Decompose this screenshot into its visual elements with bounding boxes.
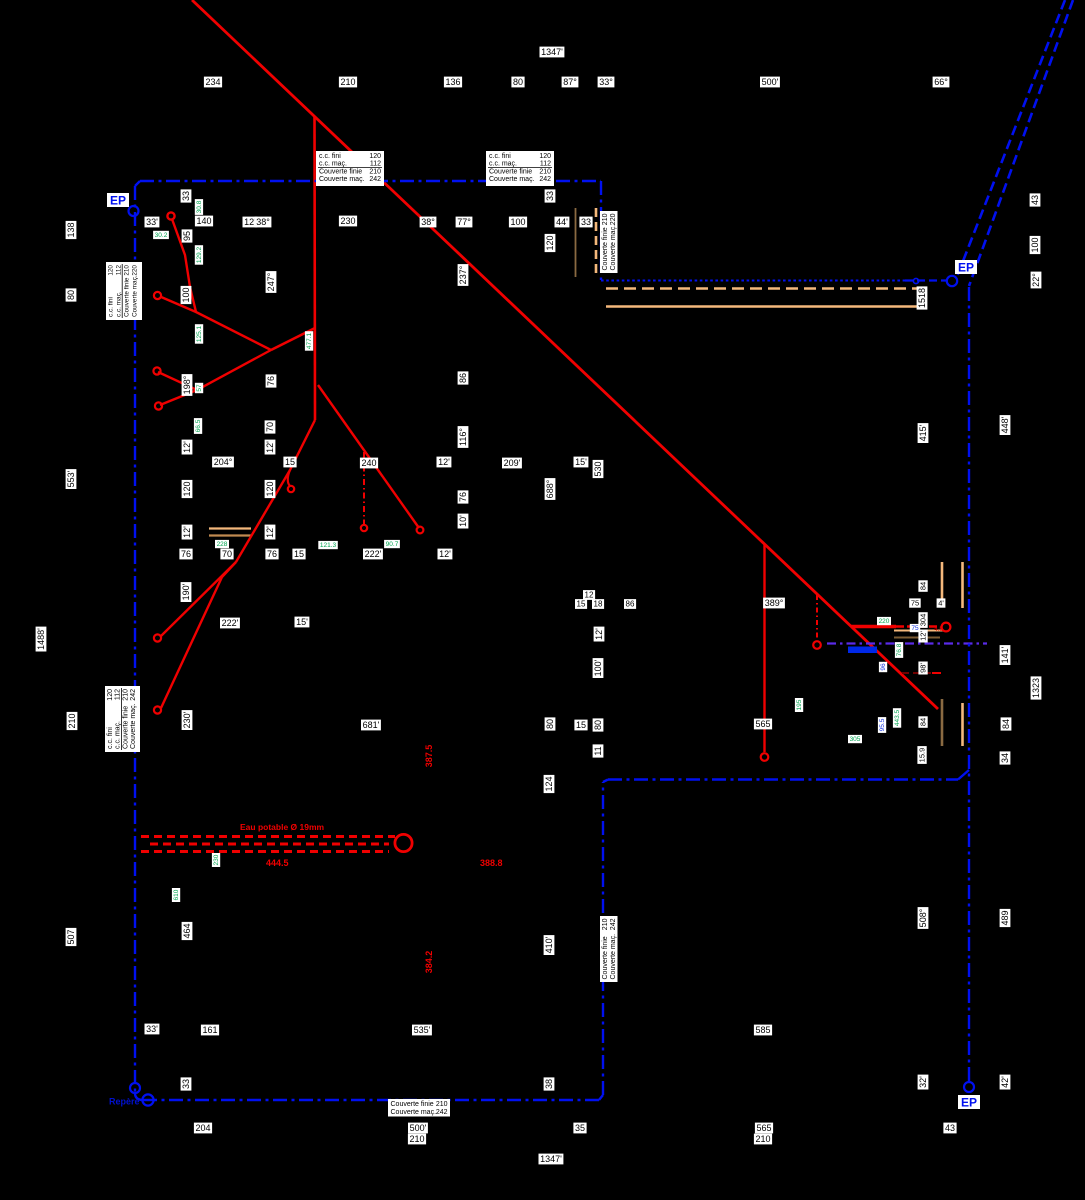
svg-text:76: 76 — [181, 549, 191, 559]
svg-text:112: 112 — [115, 689, 122, 700]
svg-text:12': 12' — [594, 628, 604, 640]
svg-text:c.c. maç.: c.c. maç. — [489, 161, 517, 168]
svg-text:190': 190' — [181, 583, 191, 600]
svg-text:c.c. maç.: c.c. maç. — [319, 161, 347, 168]
svg-text:489: 489 — [1000, 910, 1010, 925]
svg-text:15: 15 — [576, 720, 586, 730]
svg-text:c.c. fini: c.c. fini — [489, 153, 511, 160]
svg-text:30.2: 30.2 — [155, 232, 168, 239]
svg-text:112: 112 — [115, 265, 122, 276]
svg-text:237°: 237° — [458, 265, 468, 284]
svg-text:98': 98' — [919, 663, 928, 673]
svg-text:210: 210 — [67, 713, 77, 728]
svg-text:228: 228 — [217, 541, 228, 548]
svg-text:10': 10' — [458, 515, 468, 527]
svg-text:Couverte finie: Couverte finie — [123, 277, 130, 317]
svg-text:116°: 116° — [458, 428, 468, 446]
svg-text:Eau potable Ø 19mm: Eau potable Ø 19mm — [240, 822, 325, 832]
svg-text:c.c. maç.: c.c. maç. — [115, 291, 122, 317]
svg-text:195: 195 — [796, 699, 803, 710]
svg-text:204: 204 — [195, 1123, 210, 1133]
svg-text:535': 535' — [414, 1025, 431, 1035]
svg-text:33: 33 — [181, 191, 191, 201]
svg-text:585: 585 — [755, 1025, 770, 1035]
svg-text:96: 96 — [880, 663, 887, 671]
svg-text:387.5: 387.5 — [424, 745, 434, 768]
svg-text:34: 34 — [1000, 753, 1010, 763]
svg-text:415': 415' — [918, 424, 928, 441]
svg-text:33': 33' — [146, 217, 158, 227]
svg-text:76: 76 — [267, 549, 277, 559]
svg-text:Couverte maç.: Couverte maç. — [489, 176, 535, 183]
svg-text:138: 138 — [66, 222, 76, 237]
svg-text:1488': 1488' — [36, 628, 46, 650]
svg-text:76: 76 — [458, 492, 468, 502]
svg-text:210: 210 — [340, 77, 355, 87]
svg-text:Couverte finie: Couverte finie — [391, 1101, 434, 1108]
svg-text:230': 230' — [182, 711, 192, 728]
svg-text:38: 38 — [544, 1079, 554, 1089]
svg-text:247°: 247° — [266, 272, 276, 291]
svg-text:242: 242 — [369, 176, 381, 183]
svg-text:210: 210 — [369, 168, 381, 175]
svg-text:141': 141' — [1000, 646, 1010, 663]
svg-text:124: 124 — [544, 776, 554, 791]
svg-text:100: 100 — [181, 287, 191, 302]
svg-text:42': 42' — [1000, 1076, 1010, 1088]
svg-text:33: 33 — [545, 191, 555, 201]
svg-text:43: 43 — [1030, 195, 1040, 205]
svg-text:448': 448' — [1000, 416, 1010, 433]
svg-text:565: 565 — [755, 719, 770, 729]
svg-text:242: 242 — [610, 918, 617, 930]
svg-text:681': 681' — [363, 720, 380, 730]
svg-text:c.c. fini: c.c. fini — [319, 153, 341, 160]
svg-text:120: 120 — [182, 481, 192, 496]
svg-text:444.5: 444.5 — [266, 858, 289, 868]
svg-text:209': 209' — [504, 458, 521, 468]
svg-text:120: 120 — [369, 153, 381, 160]
svg-text:198°: 198° — [182, 375, 192, 394]
svg-text:389°: 389° — [765, 598, 784, 608]
svg-text:15: 15 — [294, 549, 304, 559]
svg-text:38°: 38° — [421, 217, 435, 227]
svg-text:Couverte finie: Couverte finie — [122, 706, 129, 749]
svg-text:30.8: 30.8 — [196, 200, 203, 213]
svg-text:220: 220 — [610, 213, 617, 225]
svg-text:140: 140 — [196, 216, 211, 226]
svg-text:100': 100' — [593, 659, 603, 676]
svg-text:12': 12' — [438, 457, 450, 467]
svg-text:EP: EP — [110, 194, 126, 208]
svg-text:688°: 688° — [545, 479, 555, 498]
svg-text:70: 70 — [222, 549, 232, 559]
svg-text:80: 80 — [545, 719, 555, 729]
svg-text:220: 220 — [879, 618, 890, 625]
svg-text:84: 84 — [919, 718, 928, 726]
svg-text:508°: 508° — [918, 908, 928, 927]
svg-text:220: 220 — [131, 265, 138, 276]
svg-text:204°: 204° — [214, 457, 233, 467]
svg-text:100: 100 — [1030, 237, 1040, 252]
svg-text:87°: 87° — [563, 77, 577, 87]
svg-text:Couverte maç.: Couverte maç. — [610, 934, 617, 980]
svg-text:57: 57 — [196, 384, 203, 392]
svg-text:86: 86 — [458, 373, 468, 383]
svg-text:18: 18 — [594, 600, 603, 609]
svg-text:210: 210 — [602, 918, 609, 930]
svg-text:43: 43 — [945, 1123, 955, 1133]
svg-text:35: 35 — [575, 1123, 585, 1133]
svg-text:76.8: 76.8 — [896, 643, 903, 656]
svg-text:530: 530 — [593, 461, 603, 476]
svg-text:388.8: 388.8 — [480, 858, 503, 868]
svg-text:38°: 38° — [256, 217, 270, 227]
svg-text:Couverte finie: Couverte finie — [319, 168, 362, 175]
svg-text:76: 76 — [266, 376, 276, 386]
svg-text:33: 33 — [581, 217, 591, 227]
svg-text:210: 210 — [122, 689, 129, 701]
svg-text:500': 500' — [762, 77, 779, 87]
svg-text:4': 4' — [938, 599, 944, 608]
svg-text:161: 161 — [202, 1025, 217, 1035]
svg-text:136: 136 — [445, 77, 460, 87]
svg-text:15: 15 — [285, 457, 295, 467]
svg-text:c.c. fini: c.c. fini — [107, 297, 114, 317]
svg-text:90.7: 90.7 — [386, 541, 399, 548]
svg-text:EP: EP — [961, 1096, 977, 1110]
svg-text:15': 15' — [296, 617, 308, 627]
svg-text:112: 112 — [540, 161, 551, 168]
svg-text:4.5: 4.5 — [934, 626, 943, 633]
svg-text:11: 11 — [593, 746, 603, 755]
svg-text:120: 120 — [539, 153, 551, 160]
svg-text:222': 222' — [222, 618, 239, 628]
svg-text:Couverte maç.: Couverte maç. — [130, 703, 137, 749]
svg-text:Couverte finie: Couverte finie — [602, 936, 609, 979]
svg-text:120: 120 — [107, 265, 114, 276]
svg-text:80: 80 — [66, 290, 76, 300]
svg-text:EP: EP — [958, 261, 974, 275]
svg-text:384.2: 384.2 — [424, 951, 434, 974]
svg-text:500': 500' — [410, 1123, 427, 1133]
svg-text:80: 80 — [513, 77, 523, 87]
svg-text:Couverte maç.: Couverte maç. — [319, 176, 365, 183]
svg-text:507: 507 — [66, 929, 76, 944]
svg-text:210: 210 — [755, 1134, 770, 1144]
svg-text:210: 210 — [539, 168, 551, 175]
svg-text:84: 84 — [919, 582, 928, 590]
svg-text:32': 32' — [918, 1076, 928, 1088]
svg-text:443.5: 443.5 — [894, 709, 901, 726]
svg-text:22°: 22° — [1031, 273, 1041, 287]
svg-text:95.5: 95.5 — [879, 718, 886, 731]
svg-text:86: 86 — [626, 600, 635, 609]
svg-text:1518: 1518 — [917, 288, 927, 308]
svg-text:230: 230 — [213, 854, 220, 865]
svg-text:33°: 33° — [599, 77, 613, 87]
svg-text:234: 234 — [205, 77, 220, 87]
svg-text:c.c. maç.: c.c. maç. — [115, 721, 122, 749]
svg-text:120: 120 — [265, 481, 275, 496]
svg-text:1347': 1347' — [540, 1154, 562, 1164]
svg-text:120: 120 — [545, 235, 555, 250]
svg-text:12: 12 — [585, 591, 594, 600]
svg-text:84: 84 — [1001, 719, 1011, 729]
svg-text:75: 75 — [911, 625, 919, 632]
svg-text:Couverte finie: Couverte finie — [602, 227, 609, 270]
svg-text:553': 553' — [66, 470, 76, 487]
svg-text:100: 100 — [510, 217, 525, 227]
svg-text:12': 12' — [182, 441, 192, 453]
svg-text:1347': 1347' — [541, 47, 563, 57]
svg-text:Couverte maç.: Couverte maç. — [610, 225, 617, 271]
svg-text:12': 12' — [182, 526, 192, 538]
svg-text:12': 12' — [265, 526, 275, 538]
svg-text:c.c. fini: c.c. fini — [107, 727, 114, 749]
svg-text:15.9: 15.9 — [918, 748, 927, 763]
svg-text:112: 112 — [370, 161, 381, 168]
svg-text:75: 75 — [911, 599, 919, 608]
svg-text:242: 242 — [539, 176, 551, 183]
svg-text:95: 95 — [182, 231, 192, 241]
svg-text:210: 210 — [602, 213, 609, 225]
svg-text:242: 242 — [130, 689, 137, 701]
svg-text:129.2: 129.2 — [196, 246, 203, 263]
svg-text:610: 610 — [173, 889, 180, 900]
svg-text:12': 12' — [439, 549, 451, 559]
svg-text:240: 240 — [361, 458, 376, 468]
svg-text:33': 33' — [146, 1024, 158, 1034]
svg-text:15: 15 — [577, 600, 586, 609]
svg-text:410': 410' — [544, 936, 554, 953]
svg-text:Repère: Repère — [109, 1097, 140, 1107]
svg-text:120: 120 — [107, 689, 114, 701]
svg-text:464: 464 — [182, 923, 192, 938]
svg-text:Couverte maç.: Couverte maç. — [391, 1109, 437, 1116]
svg-text:222': 222' — [365, 549, 382, 559]
svg-text:230: 230 — [340, 216, 355, 226]
svg-text:1323: 1323 — [1031, 678, 1041, 698]
svg-text:Couverte maç.: Couverte maç. — [131, 275, 138, 317]
svg-text:Couverte finie: Couverte finie — [489, 168, 532, 175]
svg-text:70: 70 — [265, 422, 275, 432]
svg-text:12': 12' — [265, 441, 275, 453]
svg-text:210: 210 — [123, 265, 130, 276]
svg-text:66°: 66° — [934, 77, 948, 87]
svg-text:77°: 77° — [457, 217, 471, 227]
svg-text:80: 80 — [593, 720, 603, 730]
svg-text:15': 15' — [575, 457, 587, 467]
svg-text:12': 12' — [244, 217, 256, 227]
svg-text:33: 33 — [181, 1079, 191, 1089]
svg-text:66.5: 66.5 — [195, 419, 202, 432]
svg-text:44': 44' — [556, 217, 568, 227]
svg-text:210: 210 — [409, 1134, 424, 1144]
svg-text:477.1: 477.1 — [306, 332, 313, 349]
svg-text:121.3: 121.3 — [320, 542, 337, 549]
svg-text:125.1: 125.1 — [196, 325, 203, 342]
svg-text:565: 565 — [756, 1123, 771, 1133]
svg-text:305: 305 — [850, 736, 861, 743]
svg-text:210: 210 — [436, 1101, 448, 1108]
svg-text:242: 242 — [436, 1109, 448, 1116]
